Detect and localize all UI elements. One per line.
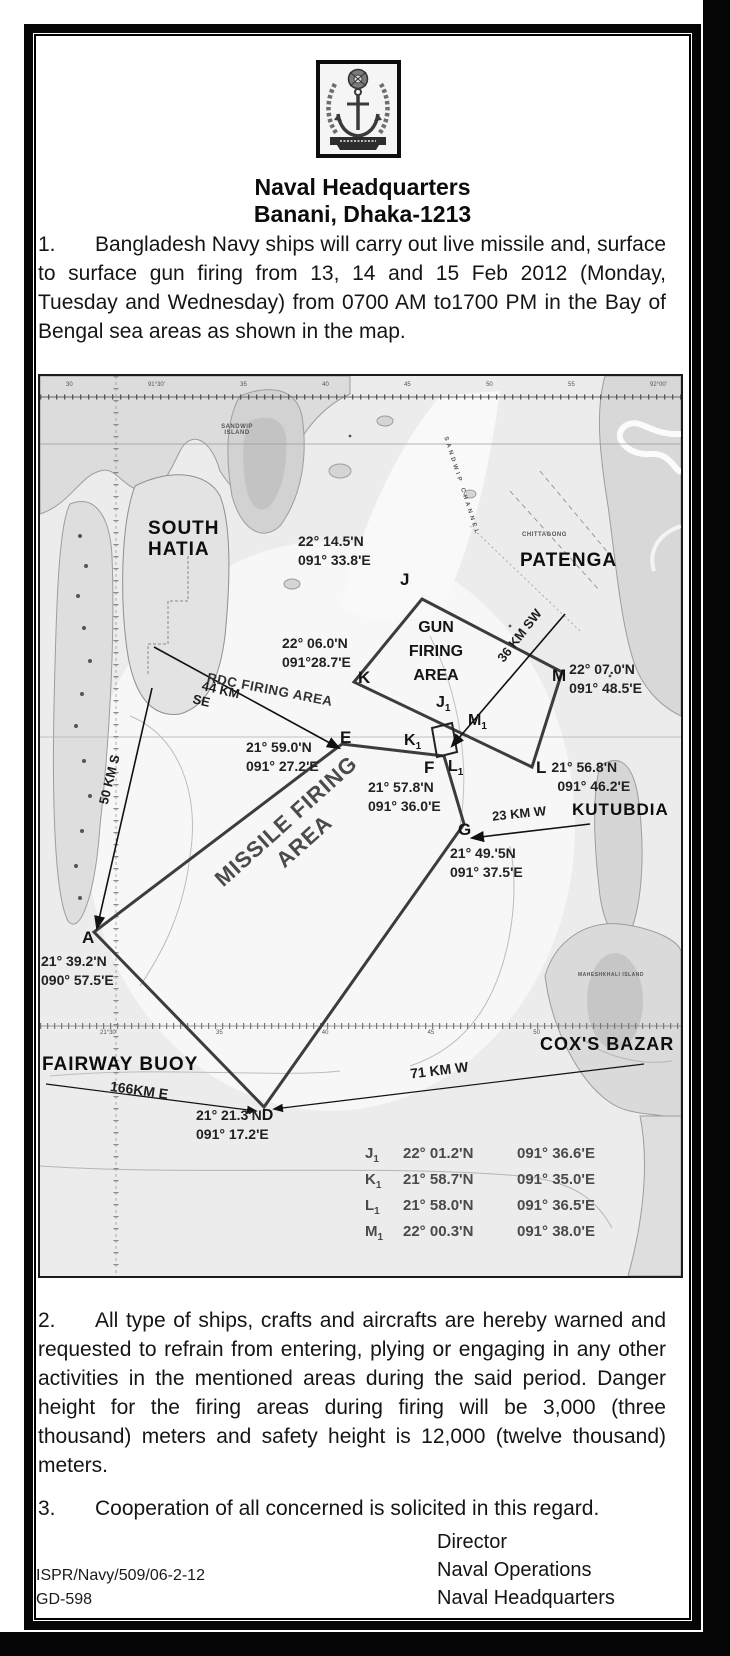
signature-org: Naval Headquarters [437,1584,615,1612]
point-L-group: L 21° 56.8'N 091° 46.2'E [536,758,630,796]
firing-areas-chart: 3091°30'354045505592°00' 21°30'35404550 … [38,374,683,1278]
point-A: A [82,928,94,948]
label-fairway-buoy: FAIRWAY BUOY [42,1054,198,1076]
label-patenga: PATENGA [520,550,617,572]
point-F-coords: 21° 57.8'N 091° 36.0'E [368,778,441,816]
para-3-text: Cooperation of all concerned is solicite… [95,1497,599,1520]
table-row: J1 22° 01.2'N 091° 36.6'E [365,1144,595,1170]
point-K1: K1 [404,732,421,752]
letterhead: Naval Headquarters Banani, Dhaka-1213 [24,174,701,228]
point-E: E [340,728,351,748]
document-page: Naval Headquarters Banani, Dhaka-1213 1.… [0,0,730,1656]
label-kutubdia: KUTUBDIA [572,800,669,820]
point-G: G [458,820,471,840]
gd-number: GD-598 [36,1588,205,1612]
signature-title: Director [437,1528,615,1556]
point-D: D [262,1107,274,1124]
point-M: M [552,666,566,698]
sub-point-coordinate-table: J1 22° 01.2'N 091° 36.6'E K1 21° 58.7'N … [365,1144,595,1248]
para-3-number: 3. [38,1494,95,1523]
point-M1: M1 [468,712,487,732]
reference-number: ISPR/Navy/509/06-2-12 [36,1564,205,1588]
para-2-text: All type of ships, crafts and aircrafts … [38,1309,666,1477]
table-row: K1 21° 58.7'N 091° 35.0'E [365,1170,595,1196]
label-chittagong: CHITTAGONG [522,532,567,538]
point-D-group: 21° 21.3'ND 091° 17.2'E [196,1106,273,1144]
label-gun-firing-area: GUN FIRING AREA [392,616,480,688]
anchor-emblem-icon [320,64,397,154]
point-L: L [536,758,546,796]
reference-block: ISPR/Navy/509/06-2-12 GD-598 [36,1564,205,1612]
label-maheshkhali: MAHESHKHALI ISLAND [578,972,644,978]
para-1-text: Bangladesh Navy ships will carry out liv… [38,233,666,343]
org-title: Naval Headquarters [24,174,701,201]
table-row: M1 22° 00.3'N 091° 38.0'E [365,1222,595,1248]
point-J1: J1 [436,694,450,714]
scan-edge-bottom [0,1632,730,1656]
navy-emblem [316,60,401,158]
scan-edge-right [703,0,730,1656]
point-F: F [424,758,434,778]
mid-ruler-labels: 21°30'35404550 [100,1030,540,1036]
label-sandwip-island: SANDWIP ISLAND [212,424,262,436]
label-south-hatia: SOUTH HATIA [148,518,220,560]
point-L1: L1 [448,758,463,778]
table-row: L1 21° 58.0'N 091° 36.5'E [365,1196,595,1222]
point-M-coords: 22° 07.0'N 091° 48.5'E [569,660,642,698]
top-ruler-labels: 3091°30'354045505592°00' [66,382,667,388]
point-K: K [358,668,370,688]
paragraph-3: 3.Cooperation of all concerned is solici… [38,1494,666,1523]
label-coxs-bazar: COX'S BAZAR [540,1034,674,1055]
para-2-number: 2. [38,1306,95,1335]
point-E-coords: 21° 59.0'N 091° 27.2'E [246,738,319,776]
signature-block: Director Naval Operations Naval Headquar… [437,1528,615,1612]
paragraph-2: 2.All type of ships, crafts and aircraft… [38,1306,666,1480]
point-J-coords: 22° 14.5'N 091° 33.8'E [298,532,371,570]
point-G-coords: 21° 49.'5N 091° 37.5'E [450,844,523,882]
paragraph-1: 1.Bangladesh Navy ships will carry out l… [38,230,666,346]
point-L-coords: 21° 56.8'N 091° 46.2'E [551,758,630,796]
signature-dept: Naval Operations [437,1556,615,1584]
para-1-number: 1. [38,230,95,259]
org-address: Banani, Dhaka-1213 [24,201,701,228]
point-K-coords: 22° 06.0'N 091°28.7'E [282,634,351,672]
chart-graphics [40,376,681,1276]
point-M-group: M 22° 07.0'N 091° 48.5'E [552,660,642,698]
point-A-coords: 21° 39.2'N 090° 57.5'E [41,952,114,990]
point-J: J [400,570,409,590]
